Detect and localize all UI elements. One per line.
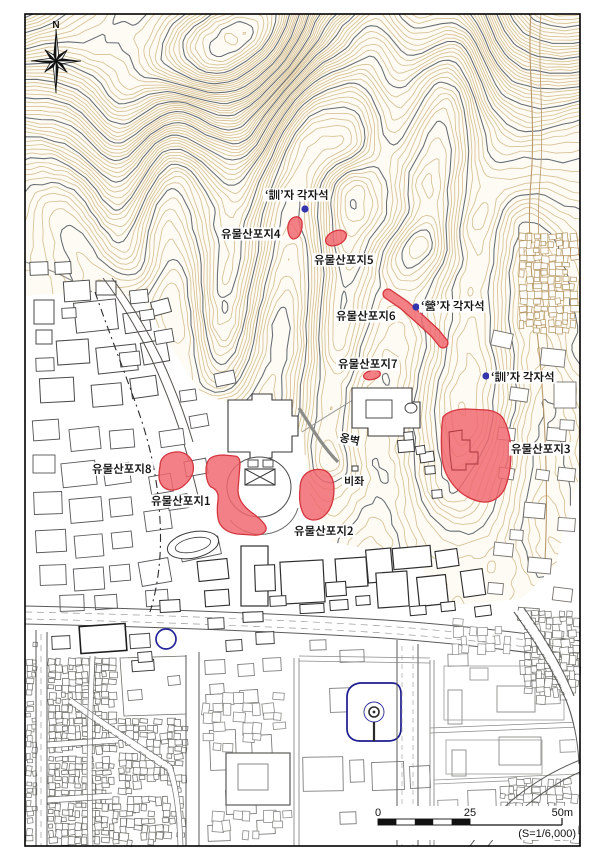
svg-text:N: N bbox=[52, 20, 59, 31]
svg-text:50m: 50m bbox=[552, 807, 573, 819]
svg-text:0: 0 bbox=[375, 807, 381, 819]
svg-text:25: 25 bbox=[464, 807, 476, 819]
svg-text:(S=1/6,000): (S=1/6,000) bbox=[518, 828, 576, 840]
